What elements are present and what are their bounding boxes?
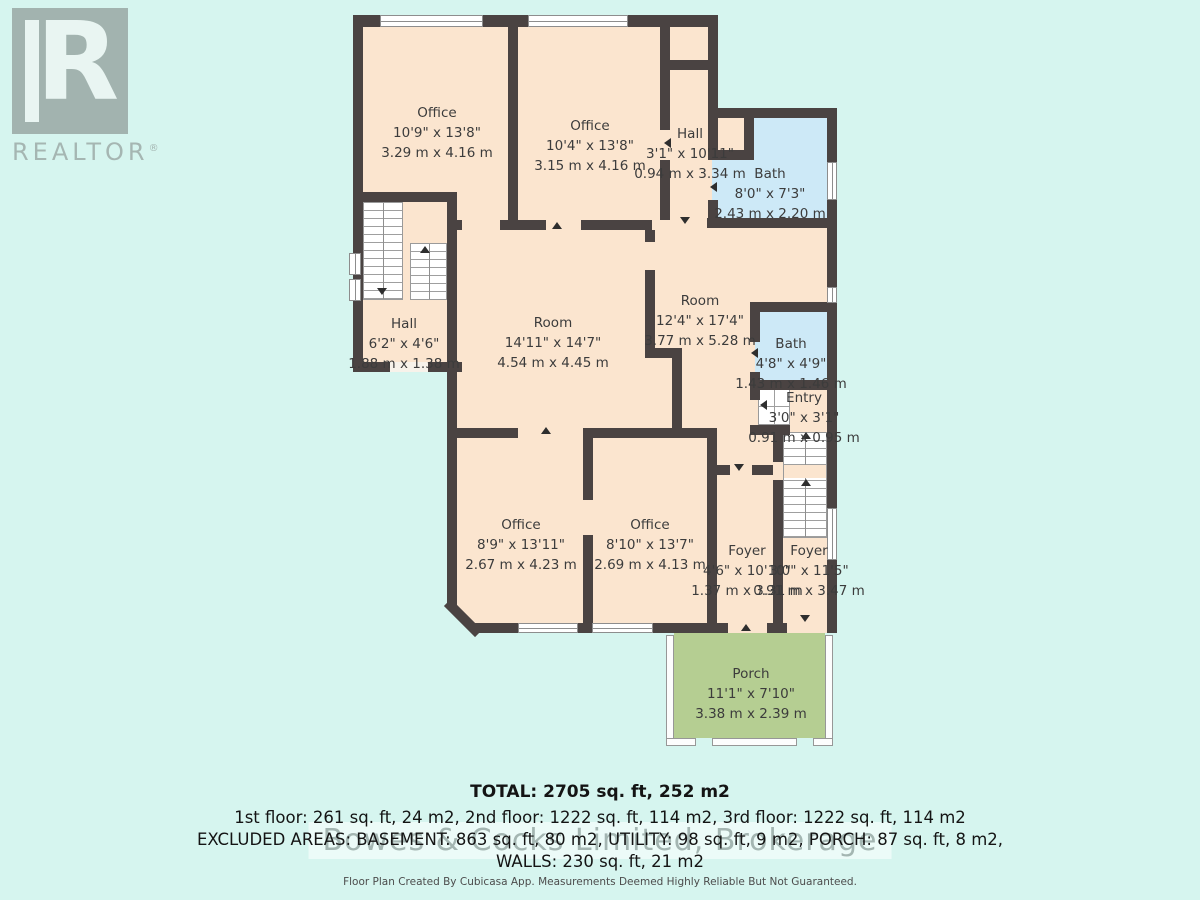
wall-segment (500, 220, 546, 230)
floorplan-canvas: R REALTOR® Office10'9" x 13'8"3.29 m x 4… (0, 0, 1200, 900)
wall-segment (767, 623, 787, 633)
room-name: Foyer (753, 541, 865, 561)
door-direction-arrow (552, 222, 562, 229)
room-metric: 3.38 m x 2.39 m (695, 704, 807, 724)
room-name: Office (465, 515, 577, 535)
room-imperial: 6'2" x 4'6" (348, 334, 460, 354)
wall-segment (827, 200, 837, 287)
room-name: Bath (735, 334, 847, 354)
wall-segment (447, 192, 457, 608)
wall-segment (717, 465, 730, 475)
porch-wall-segment (666, 738, 696, 746)
room-name: Bath (714, 164, 826, 184)
porch-wall-segment (813, 738, 833, 746)
wall-segment (660, 60, 718, 70)
wall-segment (457, 428, 518, 438)
room-imperial: 3'0" x 11'5" (753, 561, 865, 581)
wall-segment (508, 27, 518, 220)
room-metric: 2.43 m x 2.20 m (714, 204, 826, 224)
room-imperial: 4'8" x 4'9" (735, 354, 847, 374)
room-name: Room (497, 313, 609, 333)
door-direction-arrow (801, 479, 811, 486)
wall-segment (752, 465, 773, 475)
wall-segment (583, 428, 717, 438)
room-label-bath_small: Bath4'8" x 4'9"1.43 m x 1.46 m (735, 334, 847, 394)
room-imperial: 14'11" x 14'7" (497, 333, 609, 353)
room-metric: 3.29 m x 4.16 m (381, 143, 493, 163)
room-label-entry: Entry3'0" x 3'1"0.91 m x 0.95 m (748, 388, 860, 448)
porch-wall-segment (825, 635, 833, 746)
wall-segment (708, 108, 837, 118)
door-direction-arrow (741, 624, 751, 631)
summary-excluded: EXCLUDED AREAS: BASEMENT: 863 sq. ft, 80… (0, 829, 1200, 851)
staircase-foyer-landing (784, 465, 826, 478)
wall-segment (457, 220, 462, 230)
door-direction-arrow (680, 217, 690, 224)
room-label-porch: Porch11'1" x 7'10"3.38 m x 2.39 m (695, 664, 807, 724)
porch-wall-segment (712, 738, 797, 746)
realtor-logo-word: REALTOR® (12, 138, 130, 166)
window (528, 15, 628, 27)
door-direction-arrow (734, 464, 744, 471)
room-name: Office (594, 515, 706, 535)
summary-floors: 1st floor: 261 sq. ft, 24 m2, 2nd floor:… (0, 807, 1200, 829)
room-label-foyer_2: Foyer3'0" x 11'5"0.91 m x 3.47 m (753, 541, 865, 601)
realtor-logo-letter: R (36, 4, 119, 123)
room-name: Hall (634, 124, 746, 144)
disclaimer-text: Floor Plan Created By Cubicasa App. Meas… (0, 876, 1200, 888)
wall-segment (581, 220, 652, 230)
window (518, 623, 578, 633)
room-metric: 2.67 m x 4.23 m (465, 555, 577, 575)
room-label-office_tm: Office10'4" x 13'8"3.15 m x 4.16 m (534, 116, 646, 176)
porch-wall-segment (666, 635, 674, 746)
door-direction-arrow (541, 427, 551, 434)
room-imperial: 8'9" x 13'11" (465, 535, 577, 555)
room-name: Room (644, 291, 756, 311)
room-label-office_bl: Office8'9" x 13'11"2.67 m x 4.23 m (465, 515, 577, 575)
room-imperial: 12'4" x 17'4" (644, 311, 756, 331)
room-imperial: 3'1" x 10'11" (634, 144, 746, 164)
room-metric: 2.69 m x 4.13 m (594, 555, 706, 575)
room-imperial: 8'0" x 7'3" (714, 184, 826, 204)
wall-segment (353, 192, 457, 202)
realtor-logo: R REALTOR® (12, 8, 130, 166)
room-label-office_bm: Office8'10" x 13'7"2.69 m x 4.13 m (594, 515, 706, 575)
realtor-logo-square: R (12, 8, 128, 134)
wall-segment (672, 358, 682, 438)
wall-segment (645, 230, 655, 242)
window (349, 253, 361, 275)
room-metric: 0.91 m x 0.95 m (748, 428, 860, 448)
room-imperial: 3'0" x 3'1" (748, 408, 860, 428)
room-label-office_tl: Office10'9" x 13'8"3.29 m x 4.16 m (381, 103, 493, 163)
wall-segment (583, 535, 593, 623)
door-direction-arrow (800, 615, 810, 622)
room-label-bath_top: Bath8'0" x 7'3"2.43 m x 2.20 m (714, 164, 826, 224)
room-imperial: 11'1" x 7'10" (695, 684, 807, 704)
room-metric: 3.15 m x 4.16 m (534, 156, 646, 176)
wall-segment (750, 302, 837, 312)
window (827, 162, 837, 200)
room-name: Office (534, 116, 646, 136)
wall-segment (653, 623, 728, 633)
summary-walls: WALLS: 230 sq. ft, 21 m2 (0, 851, 1200, 873)
wall-segment (583, 438, 593, 500)
door-direction-arrow (377, 288, 387, 295)
window (827, 287, 837, 303)
room-imperial: 8'10" x 13'7" (594, 535, 706, 555)
area-summary: TOTAL: 2705 sq. ft, 252 m2 1st floor: 26… (0, 782, 1200, 873)
room-name: Office (381, 103, 493, 123)
wall-segment (660, 70, 670, 130)
room-name: Entry (748, 388, 860, 408)
room-label-hall_left: Hall6'2" x 4'6"1.88 m x 1.38 m (348, 314, 460, 374)
room-metric: 4.54 m x 4.45 m (497, 353, 609, 373)
window (592, 623, 653, 633)
room-name: Hall (348, 314, 460, 334)
window (380, 15, 483, 27)
room-label-room_main: Room14'11" x 14'7"4.54 m x 4.45 m (497, 313, 609, 373)
summary-total: TOTAL: 2705 sq. ft, 252 m2 (0, 782, 1200, 802)
wall-segment (578, 623, 592, 633)
room-metric: 1.88 m x 1.38 m (348, 354, 460, 374)
room-imperial: 10'9" x 13'8" (381, 123, 493, 143)
window (349, 279, 361, 301)
room-metric: 0.91 m x 3.47 m (753, 581, 865, 601)
door-direction-arrow (420, 246, 430, 253)
room-imperial: 10'4" x 13'8" (534, 136, 646, 156)
staircase-upper-left (363, 202, 403, 300)
room-name: Porch (695, 664, 807, 684)
